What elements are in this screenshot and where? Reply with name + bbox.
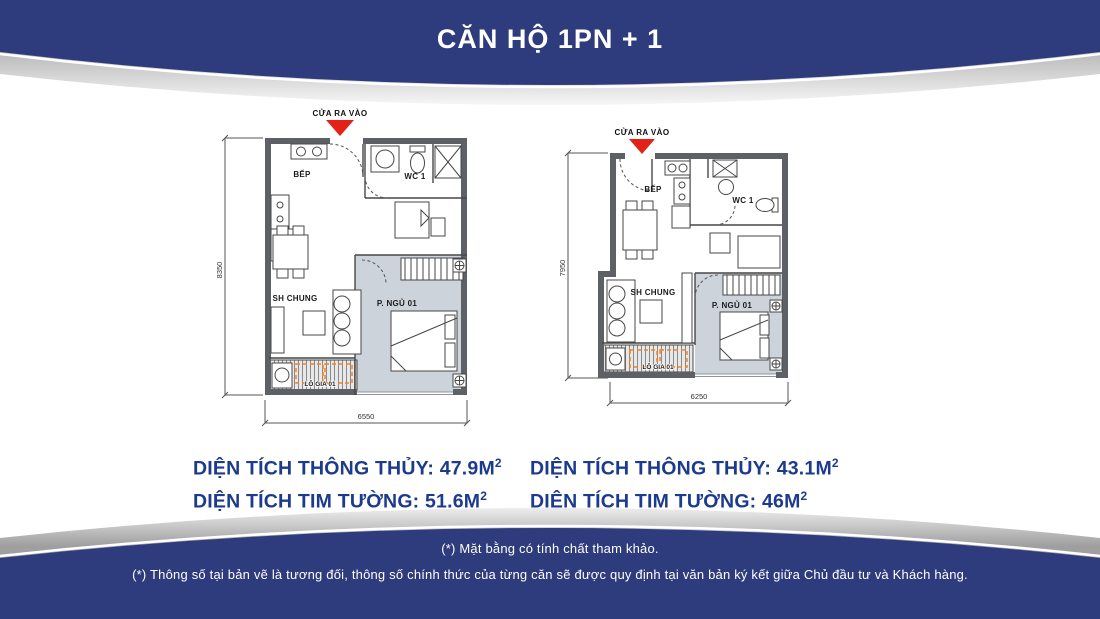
- area-sup: 2: [480, 489, 487, 503]
- area-text: DIỆN TÍCH THÔNG THỦY: 43.1M: [530, 458, 832, 480]
- floorplan-left: CỬA RA VÀO 8350 6550 LÔ GIA 01 BẾP: [185, 98, 495, 443]
- entrance-arrow-icon: [629, 139, 655, 154]
- dim-width: 6250: [691, 392, 708, 401]
- area-line: DIỆN TÍCH THÔNG THỦY: 43.1M2: [530, 450, 839, 483]
- wc-door-swing: [715, 205, 735, 225]
- floorplan-right: CỬA RA VÀO 7950 6250 LÔ GIA 01 BẾP: [540, 108, 800, 418]
- bedroom-furniture: [391, 258, 466, 387]
- area-sup: 2: [495, 456, 502, 470]
- entrance-label: CỬA RA VÀO: [615, 128, 670, 137]
- entrance-arrow-icon: [326, 120, 354, 136]
- area-text: DIỆN TÍCH TIM TƯỜNG: 46M: [530, 490, 801, 512]
- area-info-left: DIỆN TÍCH THÔNG THỦY: 47.9M2 DIỆN TÍCH T…: [193, 450, 502, 515]
- area-text: DIỆN TÍCH THÔNG THỦY: 47.9M: [193, 458, 495, 480]
- room-label-living: SH CHUNG: [630, 288, 675, 297]
- header-band: [0, 0, 1100, 115]
- wc-door-swing: [365, 176, 387, 198]
- dim-height: 8350: [215, 262, 224, 279]
- area-sup: 2: [832, 456, 839, 470]
- entrance-label: CỬA RA VÀO: [313, 109, 368, 118]
- area-text: DIỆN TÍCH TIM TƯỜNG: 51.6M: [193, 490, 480, 512]
- footer-note-1: (*) Mặt bằng có tính chất tham khảo.: [0, 541, 1100, 556]
- area-line: DIỆN TÍCH TIM TƯỜNG: 51.6M2: [193, 483, 502, 516]
- hall-furniture: [395, 202, 445, 238]
- area-info-right: DIỆN TÍCH THÔNG THỦY: 43.1M2 DIỆN TÍCH T…: [530, 450, 839, 515]
- area-line: DIỆN TÍCH TIM TƯỜNG: 46M2: [530, 483, 839, 516]
- page-title: CĂN HỘ 1PN + 1: [0, 24, 1100, 55]
- room-label-wc: WC 1: [404, 172, 425, 181]
- room-label-living: SH CHUNG: [272, 294, 317, 303]
- room-label-bedroom: P. NGỦ 01: [377, 299, 418, 308]
- room-label-loggia: LÔ GIA 01: [304, 379, 336, 388]
- header-white-edge: [0, 54, 1100, 87]
- footer-band: [0, 504, 1100, 619]
- footer-shadow-curve: [0, 508, 1100, 619]
- washer: [606, 348, 625, 370]
- living-furniture: [271, 226, 361, 354]
- dim-width: 6550: [358, 412, 375, 421]
- room-label-kitchen: BẾP: [644, 184, 662, 194]
- footer-note-2: (*) Thông số tại bản vẽ là tương đối, th…: [0, 567, 1100, 582]
- wc-fixtures: [371, 146, 425, 173]
- bedroom-window: [357, 392, 453, 395]
- room-label-loggia: LÔ GIA 01: [642, 362, 674, 371]
- kitchen-fixtures: [665, 161, 690, 228]
- area-line: DIỆN TÍCH THÔNG THỦY: 47.9M2: [193, 450, 502, 483]
- area-sup: 2: [801, 489, 808, 503]
- room-label-wc: WC 1: [732, 196, 753, 205]
- dim-height: 7950: [558, 260, 567, 277]
- room-label-kitchen: BẾP: [293, 169, 311, 179]
- utility-closet: [435, 146, 461, 178]
- entry-door-swing: [330, 144, 363, 177]
- bedroom-window: [695, 374, 776, 377]
- hall-furniture: [710, 233, 780, 268]
- room-label-bedroom: P. NGỦ 01: [712, 301, 753, 310]
